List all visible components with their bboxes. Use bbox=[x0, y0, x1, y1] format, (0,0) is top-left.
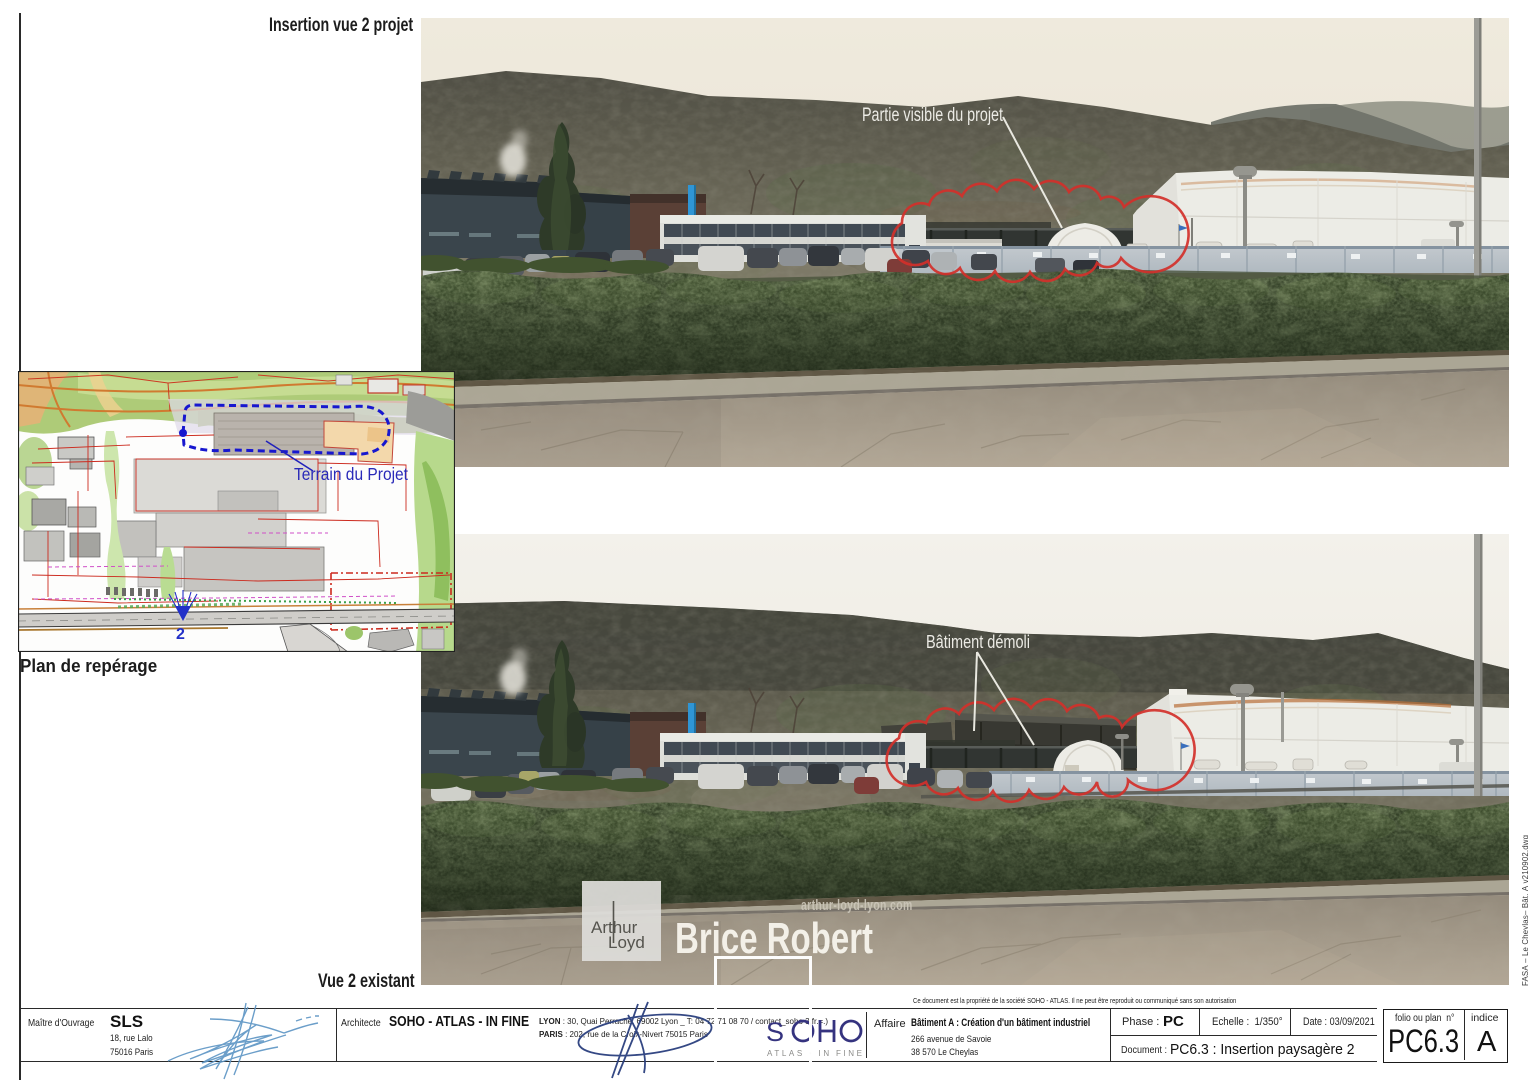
svg-text:2: 2 bbox=[176, 626, 185, 643]
svg-text:Bâtiment démoli: Bâtiment démoli bbox=[926, 631, 1030, 652]
svg-text:Partie visible du projet: Partie visible du projet bbox=[862, 105, 1004, 126]
svg-text:Terrain du Projet: Terrain du Projet bbox=[294, 464, 408, 484]
